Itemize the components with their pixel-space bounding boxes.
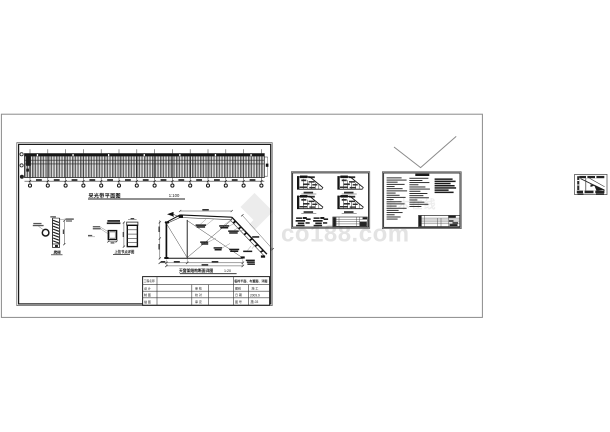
svg-text:1:20: 1:20 xyxy=(224,269,231,273)
svg-text:审 定: 审 定 xyxy=(195,299,202,304)
svg-text:图别: 图别 xyxy=(235,286,241,291)
svg-text:图 号: 图 号 xyxy=(235,299,242,304)
svg-text:施 工: 施 工 xyxy=(252,286,259,291)
svg-text:日 期: 日 期 xyxy=(235,292,242,297)
svg-text:校 对: 校 对 xyxy=(195,292,202,297)
svg-text:制 图: 制 图 xyxy=(144,292,151,297)
svg-text:爬梯: 爬梯 xyxy=(53,250,62,255)
svg-text:临时平面、布置图、详图: 临时平面、布置图、详图 xyxy=(234,278,267,283)
svg-text:审 核: 审 核 xyxy=(195,286,202,291)
svg-text:设 计: 设 计 xyxy=(144,286,151,291)
svg-text:1:100: 1:100 xyxy=(169,193,180,198)
svg-text:工程名称: 工程名称 xyxy=(144,279,155,283)
svg-text:2009.9: 2009.9 xyxy=(250,293,260,297)
svg-text:描 图: 描 图 xyxy=(144,299,151,304)
svg-text:施-03: 施-03 xyxy=(251,299,259,304)
svg-text:天窗架结构断面详图: 天窗架结构断面详图 xyxy=(179,268,213,273)
svg-text:上弦节点详图: 上弦节点详图 xyxy=(115,249,135,254)
